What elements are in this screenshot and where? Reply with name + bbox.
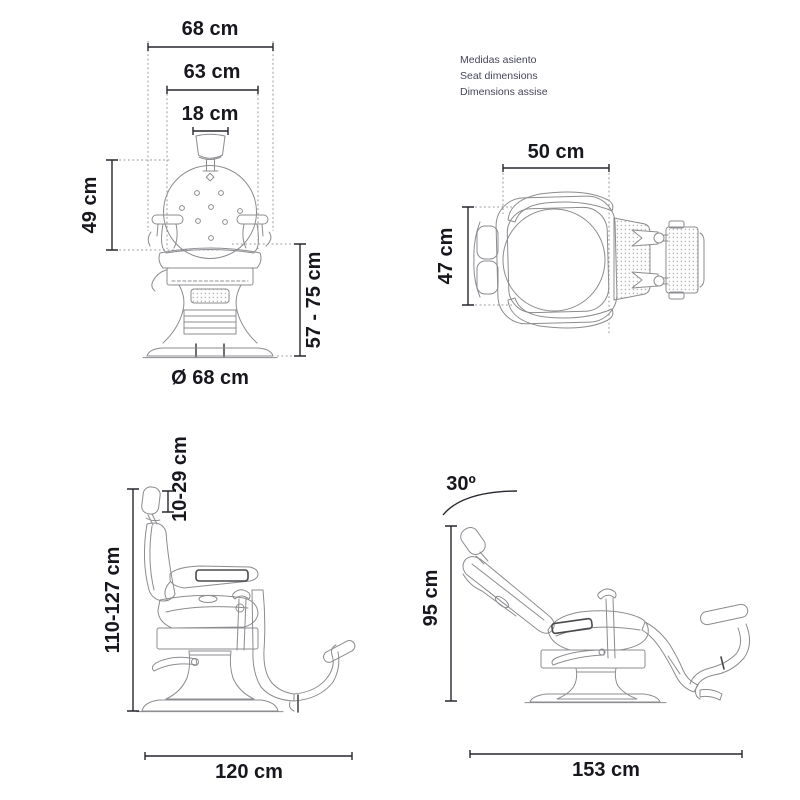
reclined-length-label: 153 cm (572, 759, 640, 781)
top-view: Medidas asiento Seat dimensions Dimensio… (435, 54, 704, 333)
top-dimension-lines (462, 164, 609, 305)
reclined-chair-drawing (458, 524, 750, 702)
technical-diagram-svg: 68 cm 63 cm 18 cm 49 cm 57 - 75 cm Ø 68 … (0, 0, 800, 800)
front-dimension-lines (106, 43, 306, 356)
top-chair-drawing (474, 192, 704, 328)
reclined-angle-label: 30º (446, 473, 476, 495)
front-chair-drawing (143, 134, 277, 357)
side-total-length-label: 120 cm (215, 761, 283, 783)
side-dimension-lines (127, 489, 352, 760)
top-seat-depth-label: 47 cm (435, 228, 457, 285)
side-view: 10-29 cm 110-127 cm 120 cm (102, 436, 357, 783)
front-backrest-height-label: 49 cm (79, 177, 101, 234)
front-view: 68 cm 63 cm 18 cm 49 cm 57 - 75 cm Ø 68 … (79, 18, 325, 389)
heading-line-es: Medidas asiento (460, 54, 537, 66)
front-seat-height-label: 57 - 75 cm (303, 252, 325, 349)
side-total-height-label: 110-127 cm (102, 547, 124, 654)
barber-chair-dimension-sheet: 68 cm 63 cm 18 cm 49 cm 57 - 75 cm Ø 68 … (0, 0, 800, 800)
front-headrest-width-label: 18 cm (182, 103, 239, 125)
reclined-view: 30º 95 cm 153 cm (420, 473, 750, 781)
heading-line-fr: Dimensions assise (460, 86, 548, 98)
top-extension-lines (462, 173, 609, 333)
front-extension-lines (106, 41, 306, 356)
side-headrest-range-label: 10-29 cm (169, 436, 191, 522)
front-overall-width-label: 68 cm (182, 18, 239, 40)
front-base-diameter-label: Ø 68 cm (171, 367, 249, 389)
reclined-height-label: 95 cm (420, 570, 442, 627)
top-seat-width-label: 50 cm (528, 141, 585, 163)
heading-line-en: Seat dimensions (460, 70, 538, 82)
front-upper-width-label: 63 cm (184, 61, 241, 83)
